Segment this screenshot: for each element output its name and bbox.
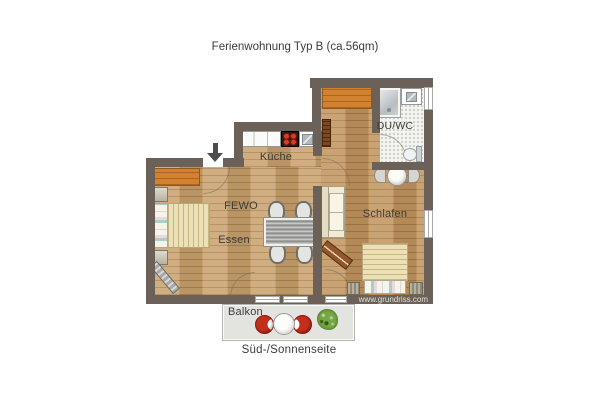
plan-title: Ferienwohnung Typ B (ca.56qm): [145, 41, 445, 53]
sofa-cushions: [329, 193, 344, 231]
double-bed-icon: [362, 243, 408, 281]
label-kitchen: Küche: [236, 151, 316, 163]
sofa-back: [322, 187, 329, 237]
bedroom-window: [424, 210, 433, 238]
balcony-door-living-2: [283, 296, 308, 303]
washbasin-icon: [401, 88, 422, 105]
label-bathroom: DU/WC: [365, 120, 425, 132]
nightstand-icon: [347, 282, 360, 295]
sink-basin: [302, 134, 313, 145]
balcony-chair-icon: [293, 315, 312, 334]
wall-divider-lower: [313, 186, 322, 295]
shower-drain: [387, 108, 391, 112]
side-chair-icon: [408, 168, 420, 183]
wall-left: [146, 158, 155, 304]
wall-hallway-left: [312, 88, 321, 131]
label-dining: Essen: [204, 234, 264, 246]
entrance-arrow-head: [207, 153, 223, 162]
bathroom-window: [424, 87, 433, 110]
kitchen-counter-icon: [240, 131, 281, 147]
tall-cabinet-icon: [322, 119, 331, 147]
toilet-icon: [403, 148, 417, 161]
dining-chair-icon: [296, 243, 313, 264]
floorplan: Ferienwohnung Typ B (ca.56qm): [0, 0, 600, 400]
balcony-door-bedroom: [325, 296, 347, 303]
label-fewo: FEWO: [211, 200, 271, 212]
side-chair-icon: [374, 168, 386, 183]
label-orientation: Süd-/Sonnenseite: [214, 344, 364, 356]
wardrobe-icon: [322, 87, 372, 109]
wall-kitchen-top: [234, 122, 321, 131]
balcony-door-living-1: [255, 296, 280, 303]
shower-icon: [378, 88, 400, 117]
label-bedroom: Schlafen: [350, 208, 420, 220]
wall-livingroom-top-a: [146, 158, 203, 167]
sideboard-icon: [152, 168, 200, 186]
nightstand-icon: [409, 282, 423, 295]
dining-table-icon: [264, 218, 316, 246]
basin: [406, 92, 417, 102]
watermark: www.grundriss.com: [352, 295, 428, 304]
dining-chair-icon: [269, 243, 286, 264]
bed-pillows-icon: [364, 280, 406, 294]
stove-icon: [281, 131, 299, 147]
sofa-icon: [321, 186, 345, 238]
wall-top: [310, 78, 433, 88]
wall-right: [424, 78, 433, 304]
label-balcony: Balkon: [228, 306, 278, 318]
plant-icon: [317, 309, 338, 330]
wall-bathroom-bottom: [372, 162, 424, 170]
